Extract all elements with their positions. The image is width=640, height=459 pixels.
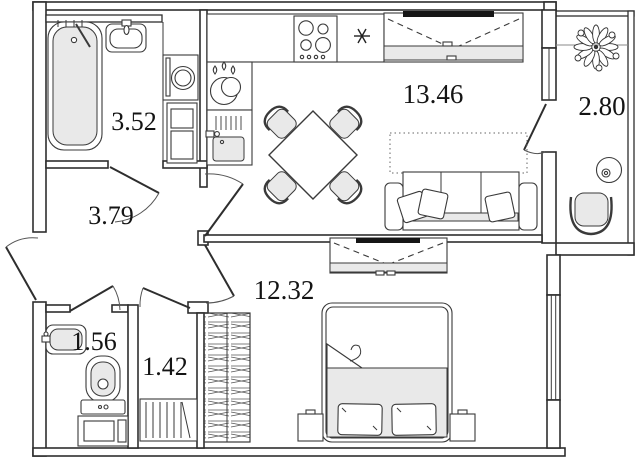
toilet <box>81 356 125 414</box>
living-room-door <box>205 184 243 236</box>
wall-bottom <box>33 448 565 456</box>
wall-bath-duct <box>46 15 162 22</box>
wall-bedroom-right-upper <box>547 255 560 295</box>
floor-plan: 3.52 3.79 13.46 2.80 1.56 1.42 12.32 <box>0 0 640 459</box>
shelf-wardrobe <box>204 313 250 442</box>
wall-balcony-partition-lower <box>542 152 556 243</box>
wall-balcony-bottom <box>556 243 634 255</box>
balcony-table <box>597 158 622 183</box>
plant <box>574 25 619 71</box>
wall-hall-cap-lower <box>188 302 208 313</box>
bed-pillow <box>338 404 383 436</box>
wall-closet-right <box>197 313 204 448</box>
nightstand-right <box>450 410 475 441</box>
wall-bedroom-right-lower <box>547 400 560 448</box>
bathroom-door <box>110 167 159 193</box>
label-closet-area: 1.42 <box>142 352 188 381</box>
wc-cabinet <box>78 416 128 446</box>
dining-set <box>260 102 365 207</box>
sofa-pillow <box>485 192 516 223</box>
label-toilet-area: 1.56 <box>71 327 117 356</box>
burner <box>301 40 311 50</box>
bed-pillow <box>392 404 437 436</box>
wall-toilet-closet <box>128 305 138 448</box>
label-hallway-area: 3.79 <box>88 201 134 230</box>
label-bedroom-area: 12.32 <box>254 275 315 305</box>
label-bathroom-area: 3.52 <box>111 107 157 136</box>
bedroom-door <box>205 245 234 296</box>
bed <box>322 303 452 442</box>
wall-balcony-right <box>628 11 634 255</box>
wall-top <box>33 2 556 10</box>
sofa-pillow <box>418 189 449 220</box>
balcony-furniture <box>570 25 621 234</box>
bedroom-furniture <box>204 238 475 442</box>
balcony-chair <box>570 193 611 234</box>
bedroom-window <box>547 295 560 400</box>
wall-bathroom-bottom <box>46 161 108 168</box>
bedroom-wardrobe <box>330 238 447 275</box>
sofa-bed-extension <box>390 133 527 173</box>
toilet-door <box>70 286 113 311</box>
burner <box>316 38 331 53</box>
sofa <box>385 133 537 230</box>
kitchen-fixtures <box>206 11 523 165</box>
burner <box>299 21 313 35</box>
wall-left-lower <box>33 302 46 456</box>
closet-rod <box>140 399 197 441</box>
entrance-door <box>6 247 36 300</box>
closet-door <box>143 288 190 308</box>
wall-balcony-top <box>556 11 634 16</box>
kitchen-wardrobe <box>384 11 523 62</box>
toilet-tank <box>81 400 125 414</box>
wc-sink-tap <box>42 336 50 342</box>
kitchen-faucet <box>206 131 214 137</box>
balcony-door <box>524 104 546 150</box>
bathtub-drain <box>71 37 76 42</box>
kitchen-sink-basin <box>213 137 244 161</box>
bathroom-fixtures <box>48 20 198 163</box>
bathtub-inner <box>53 27 97 145</box>
label-balcony-area: 2.80 <box>578 91 625 121</box>
label-kitchen-living-area: 13.46 <box>403 79 464 109</box>
wall-toilet-top-left <box>46 305 70 312</box>
wall-balcony-partition-upper <box>542 10 556 48</box>
sofa-armrest <box>519 183 537 230</box>
nightstand-left <box>298 410 323 441</box>
wall-left-upper <box>33 2 46 232</box>
burner <box>318 24 328 34</box>
